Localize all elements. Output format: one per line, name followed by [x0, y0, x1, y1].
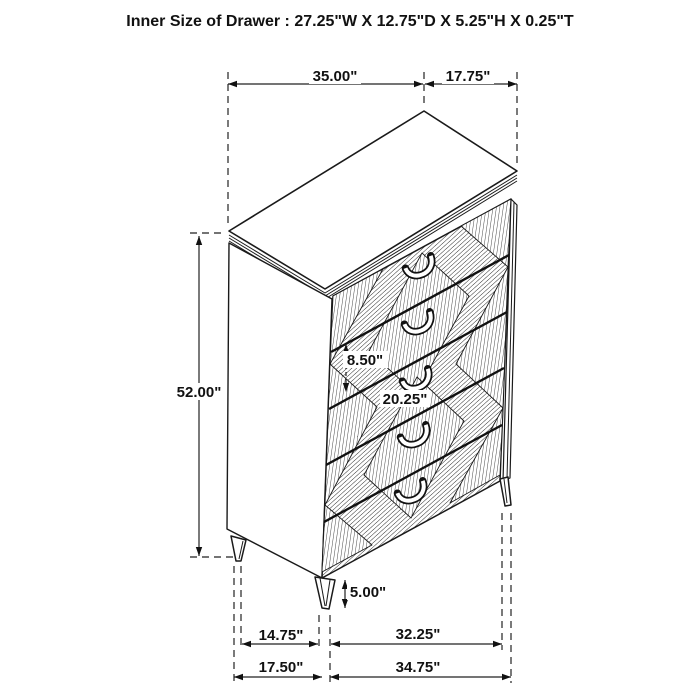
dim-label-drawer-height: 8.50"	[347, 352, 383, 369]
dim-label-bottom-front-outer: 34.75"	[396, 659, 441, 676]
dim-label-drawer-width: 20.25"	[383, 391, 428, 408]
dim-label-top-depth: 17.75"	[446, 68, 491, 85]
dim-label-height: 52.00"	[177, 384, 222, 401]
dim-label-bottom-side-outer: 17.50"	[259, 659, 304, 676]
left-leg	[231, 536, 246, 561]
chest-side-panel	[227, 243, 332, 578]
dim-label-bottom-side-inner: 14.75"	[259, 627, 304, 644]
dimension-diagram: Inner Size of Drawer : 27.25"W X 12.75"D…	[0, 0, 700, 700]
dim-label-top-width: 35.00"	[313, 68, 358, 85]
diagram-title: Inner Size of Drawer : 27.25"W X 12.75"D…	[126, 13, 574, 30]
diagram-canvas: Inner Size of Drawer : 27.25"W X 12.75"D…	[0, 0, 700, 700]
dim-label-leg-height: 5.00"	[350, 584, 386, 601]
dim-label-bottom-front-inner: 32.25"	[396, 626, 441, 643]
